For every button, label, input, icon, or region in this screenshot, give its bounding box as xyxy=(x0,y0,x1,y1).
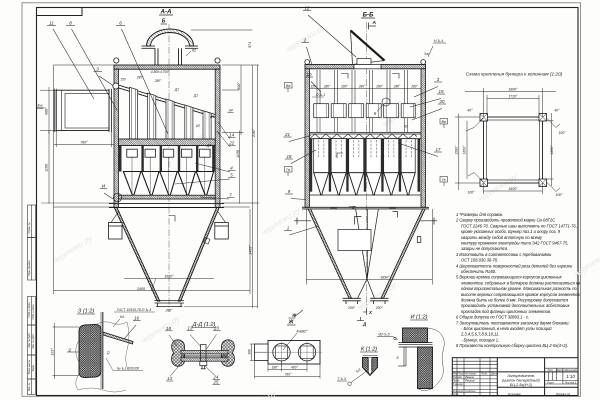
svg-text:К (1:2): К (1:2) xyxy=(361,347,377,353)
svg-text:- Бункер, позиция 1.: - Бункер, позиция 1. xyxy=(461,337,499,342)
svg-text:(циклон батарейный): (циклон батарейный) xyxy=(502,379,540,383)
svg-text:Еа: Еа xyxy=(38,103,44,108)
svg-text:Формат А1: Формат А1 xyxy=(556,392,571,396)
svg-text:4 Шероховатость поверхностей р: 4 Шероховатость поверхностей реза детале… xyxy=(456,263,573,268)
svg-text:Схема крепления бункера к коло: Схема крепления бункера к колоннам (1:20… xyxy=(466,72,563,77)
svg-text:Д1: Д1 xyxy=(193,94,198,98)
svg-text:1610°: 1610° xyxy=(164,275,174,279)
svg-text:18: 18 xyxy=(166,326,171,331)
svg-text:Инв. № дубл.: Инв. № дубл. xyxy=(28,332,31,347)
svg-text:2167: 2167 xyxy=(252,128,256,138)
svg-text:- Блок циклонный, в него входя: - Блок циклонный, в него входят узлы поз… xyxy=(461,326,552,331)
svg-text:760°: 760° xyxy=(80,141,88,145)
svg-text:12: 12 xyxy=(305,6,310,11)
svg-text:1850°: 1850° xyxy=(550,145,554,155)
svg-text:200°: 200° xyxy=(375,306,384,310)
svg-text:380: 380 xyxy=(248,349,252,355)
svg-text:ОСТ 108.030.30-78.: ОСТ 108.030.30-78. xyxy=(461,258,498,263)
svg-text:200°: 200° xyxy=(347,306,356,310)
svg-text:150: 150 xyxy=(310,85,316,89)
svg-text:Д1: Д1 xyxy=(174,88,179,92)
svg-text:Н-Ъ.4: Н-Ъ.4 xyxy=(434,39,443,43)
svg-text:Ж: Ж xyxy=(291,313,297,318)
svg-text:кроме указанных особо. Бункер: кроме указанных особо. Бункер поз.1 и оп… xyxy=(461,229,561,234)
svg-text:19: 19 xyxy=(439,89,444,94)
svg-text:прокладок под фланцы циклонных: прокладок под фланцы циклонных элементов… xyxy=(461,309,551,314)
svg-text:10: 10 xyxy=(307,72,312,77)
svg-text:100°: 100° xyxy=(555,193,563,197)
svg-text:22: 22 xyxy=(228,141,234,146)
svg-text:Утв.: Утв. xyxy=(453,392,459,396)
svg-text:40°: 40° xyxy=(554,109,560,113)
svg-text:Подп. и дата: Подп. и дата xyxy=(32,304,35,320)
svg-text:Д: Д xyxy=(351,206,355,210)
svg-text:123*: 123* xyxy=(51,348,55,356)
svg-text:З4: З4 xyxy=(228,109,232,113)
svg-text:1800°: 1800° xyxy=(509,87,519,91)
svg-text:280°: 280° xyxy=(410,85,418,89)
svg-text:3: 3 xyxy=(96,67,99,72)
svg-text:Масштаб: Масштаб xyxy=(564,368,577,372)
svg-text:280°: 280° xyxy=(375,85,383,89)
svg-text:Д2: Д2 xyxy=(206,144,211,148)
svg-text:1:10: 1:10 xyxy=(566,374,575,379)
svg-text:600°: 600° xyxy=(45,107,49,115)
svg-text:Гв: Гв xyxy=(286,168,290,172)
svg-text:И (1:2): И (1:2) xyxy=(410,315,427,321)
svg-text:Справ. №: Справ. № xyxy=(28,222,31,233)
svg-text:17: 17 xyxy=(436,147,441,152)
svg-text:Подп.: Подп. xyxy=(481,371,488,375)
svg-text:11: 11 xyxy=(49,21,54,26)
svg-text:Копировал: Копировал xyxy=(508,392,521,396)
svg-text:574: 574 xyxy=(248,42,252,48)
svg-text:Т.контр.: Т.контр. xyxy=(453,382,464,386)
svg-text:БЦ-2-5х(4+2): БЦ-2-5х(4+2) xyxy=(510,383,533,387)
svg-text:З (1:2): З (1:2) xyxy=(78,309,95,315)
svg-text:2,3,4,5,6,7,8,9,10,11.: 2,3,4,5,6,7,8,9,10,11. xyxy=(460,332,499,337)
svg-text:И3: И3 xyxy=(210,115,214,119)
svg-text:Подп. и дата: Подп. и дата xyxy=(28,302,31,318)
svg-text:К2: К2 xyxy=(68,348,72,352)
svg-text:Петров: Петров xyxy=(465,379,475,383)
svg-text:Взам. инв.№: Взам. инв.№ xyxy=(28,360,31,375)
svg-text:должна быть не более 8 мм. Рег: должна быть не более 8 мм. Регулировку д… xyxy=(461,298,569,303)
svg-text:ГОСТ 2246-70. Сварные швы выпо: ГОСТ 2246-70. Сварные швы выполнять по Г… xyxy=(461,223,577,228)
svg-text:Дата: Дата xyxy=(490,371,498,375)
svg-text:21: 21 xyxy=(284,132,290,137)
svg-text:2280°: 2280° xyxy=(454,145,458,156)
svg-text:25: 25 xyxy=(213,380,219,385)
svg-text:200°: 200° xyxy=(164,309,173,313)
svg-text:№ докум.: № докум. xyxy=(465,371,477,375)
svg-text:Т-Ъ.3: Т-Ъ.3 xyxy=(337,377,346,381)
svg-text:И2: И2 xyxy=(196,124,200,128)
svg-text:280°: 280° xyxy=(154,79,162,83)
svg-text:100°: 100° xyxy=(558,131,566,135)
svg-text:1600°: 1600° xyxy=(509,187,519,191)
svg-text:18: 18 xyxy=(287,154,292,159)
svg-text:20: 20 xyxy=(439,99,445,104)
svg-text:Масса: Масса xyxy=(556,368,564,372)
svg-text:ГОСТ 10519-78-П-Ъ.З: ГОСТ 10519-78-П-Ъ.З xyxy=(117,308,152,312)
svg-text:1150: 1150 xyxy=(236,150,240,158)
svg-text:760°: 760° xyxy=(285,372,293,376)
svg-text:1160: 1160 xyxy=(45,164,49,172)
svg-text:Сидоров: Сидоров xyxy=(465,389,476,393)
svg-text:14: 14 xyxy=(229,133,234,138)
svg-text:Б-Б: Б-Б xyxy=(363,12,374,19)
svg-text:Золоуловитель: Золоуловитель xyxy=(507,374,534,378)
svg-text:А-А: А-А xyxy=(160,9,173,16)
svg-text:Гв: Гв xyxy=(442,178,446,182)
svg-text:К4: К4 xyxy=(120,315,124,319)
svg-text:Инв. №: Инв. № xyxy=(28,382,31,391)
svg-text:сварить между собой вплотную п: сварить между собой вплотную по всему xyxy=(461,235,543,240)
svg-text:обеспечить Ra50.: обеспечить Ra50. xyxy=(461,269,496,274)
svg-text:Листов 1: Листов 1 xyxy=(564,380,577,384)
svg-text:П-Ъ.1: П-Ъ.1 xyxy=(316,93,325,97)
svg-text:Лит.: Лит. xyxy=(546,368,553,372)
svg-text:3 Изготовить в соответствии с: 3 Изготовить в соответствии с требования… xyxy=(456,252,552,257)
svg-text:зазоры не допускаются.: зазоры не допускаются. xyxy=(460,246,508,251)
svg-text:100°: 100° xyxy=(467,191,475,195)
svg-text:280°: 280° xyxy=(340,85,348,89)
svg-text:8: 8 xyxy=(69,21,72,26)
svg-text:Ж: Ж xyxy=(288,320,295,326)
svg-text:14: 14 xyxy=(167,376,172,381)
svg-text:Разраб.: Разраб. xyxy=(453,375,463,379)
svg-text:280°: 280° xyxy=(323,85,331,89)
svg-text:280°: 280° xyxy=(358,85,366,89)
svg-text:производить установкой дополни: производить установкой дополнительных ас… xyxy=(461,303,571,308)
svg-text:40°: 40° xyxy=(467,109,473,113)
svg-text:1650°: 1650° xyxy=(463,145,467,155)
svg-text:Лист: Лист xyxy=(546,380,555,384)
svg-text:180°: 180° xyxy=(272,365,280,369)
svg-text:23: 23 xyxy=(213,325,219,330)
svg-text:7 Золоуловитель поставляется з: 7 Золоуловитель поставляется заказчику д… xyxy=(456,320,570,325)
svg-text:А: А xyxy=(372,20,377,26)
svg-text:Д-Д (1:2): Д-Д (1:2) xyxy=(192,322,216,328)
svg-text:16: 16 xyxy=(134,316,139,321)
svg-text:Ø2-Ъ.5: Ø2-Ъ.5 xyxy=(378,333,390,337)
svg-text:К2: К2 xyxy=(404,125,408,129)
svg-text:1720°: 1720° xyxy=(509,94,519,98)
svg-text:600°: 600° xyxy=(237,82,241,90)
svg-text:4хØ82°: 4хØ82° xyxy=(296,330,308,334)
svg-text:Вв: Вв xyxy=(442,120,446,124)
svg-text:1890°: 1890° xyxy=(380,275,390,279)
svg-text:контуру применяя электроды тип: контуру применяя электроды типа Э42 ГОСТ… xyxy=(461,241,568,246)
svg-text:13: 13 xyxy=(188,325,193,330)
svg-text:1455°: 1455° xyxy=(249,245,253,255)
svg-text:Вв: Вв xyxy=(286,84,290,88)
svg-text:Взам.: Взам. xyxy=(32,365,35,372)
svg-text:280°: 280° xyxy=(393,85,401,89)
svg-text:1 *Размеры для справок.: 1 *Размеры для справок. xyxy=(456,212,503,217)
svg-text:6: 6 xyxy=(119,21,122,26)
svg-text:2 Сварку производить проволоко: 2 Сварку производить проволокой марки Св… xyxy=(455,218,555,223)
svg-text:Пров.: Пров. xyxy=(453,379,460,383)
svg-text:5 Верхние кромки сопрягающихся: 5 Верхние кромки сопрягающихся корпусов … xyxy=(456,275,563,280)
svg-text:8 Произвести контрольную сборк: 8 Произвести контрольную сборку циклона … xyxy=(456,343,568,348)
svg-text:2: 2 xyxy=(303,38,307,43)
svg-text:Перв. примен.: Перв. примен. xyxy=(28,260,31,276)
svg-text:Б: Б xyxy=(162,19,166,25)
svg-text:Инв. № дубл.: Инв. № дубл. xyxy=(32,333,35,348)
svg-text:К2: К2 xyxy=(192,49,196,53)
svg-text:одном горизонтальном уровне. М: одном горизонтальном уровне. Максимальна… xyxy=(461,286,577,291)
svg-text:150: 150 xyxy=(120,78,126,82)
svg-text:высоте верхних сопрягающихся к: высоте верхних сопрягающихся кромок корп… xyxy=(461,292,580,297)
svg-text:6 Общие допуски по ГОСТ 30893.: 6 Общие допуски по ГОСТ 30893.1 - с. xyxy=(456,315,529,320)
svg-text:Ъв: Ъв xyxy=(424,52,429,56)
svg-text:4-800=1700°: 4-800=1700° xyxy=(151,70,170,74)
svg-text:2405: 2405 xyxy=(136,287,145,291)
svg-text:элементов, собранных в батарею: элементов, собранных в батарею должны ра… xyxy=(461,280,581,285)
svg-text:Иванов: Иванов xyxy=(465,375,474,379)
svg-text:400°: 400° xyxy=(291,365,299,369)
